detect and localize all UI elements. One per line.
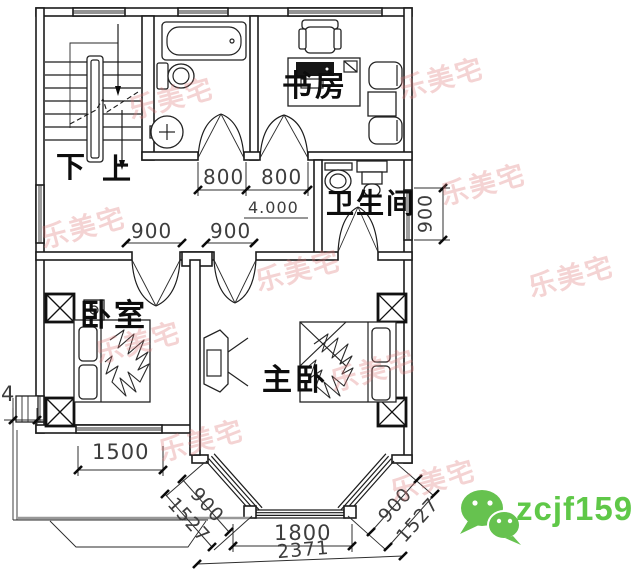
dim-left-partial: 4 [1, 384, 15, 405]
dressing-table-icon [204, 330, 248, 392]
stair-direction-arrow [115, 24, 125, 170]
wechat-icon [460, 490, 521, 545]
stair-down-label: 下 [56, 154, 85, 183]
bathtub-icon [162, 22, 246, 60]
room-label-master-bedroom: 主卧 [262, 366, 328, 396]
window [178, 8, 228, 16]
window [73, 8, 125, 16]
column-icon [378, 294, 406, 322]
ac-platform [16, 396, 38, 422]
office-chair-icon [299, 20, 341, 53]
window [288, 8, 382, 16]
room-label-study: 书房 [282, 72, 348, 102]
level-mark: 4.000 [248, 200, 299, 216]
stair-up-label: 上 [102, 156, 131, 185]
dim-toilet-side: 900 [417, 192, 436, 236]
dim-bedroom-window: 1500 [92, 442, 149, 463]
floor-plan: 下 上 书房 卫生间 卧室 主卧 800 800 4.000 900 900 9… [0, 0, 640, 582]
column-icon [46, 398, 74, 426]
dim-study-door: 800 [261, 167, 302, 187]
dim-bay-total: 2371 [276, 539, 330, 562]
washbasin-icon [150, 116, 183, 148]
wechat-id-text: zcjf159 [516, 492, 633, 525]
dim-hall-1: 900 [131, 221, 172, 241]
window [76, 425, 162, 433]
dim-bath-door: 800 [203, 167, 244, 187]
dim-hall-2: 900 [210, 221, 251, 241]
room-label-toilet: 卫生间 [326, 190, 416, 218]
column-icon [46, 294, 74, 322]
bay-window [206, 454, 394, 518]
room-label-bedroom: 卧室 [80, 300, 148, 331]
